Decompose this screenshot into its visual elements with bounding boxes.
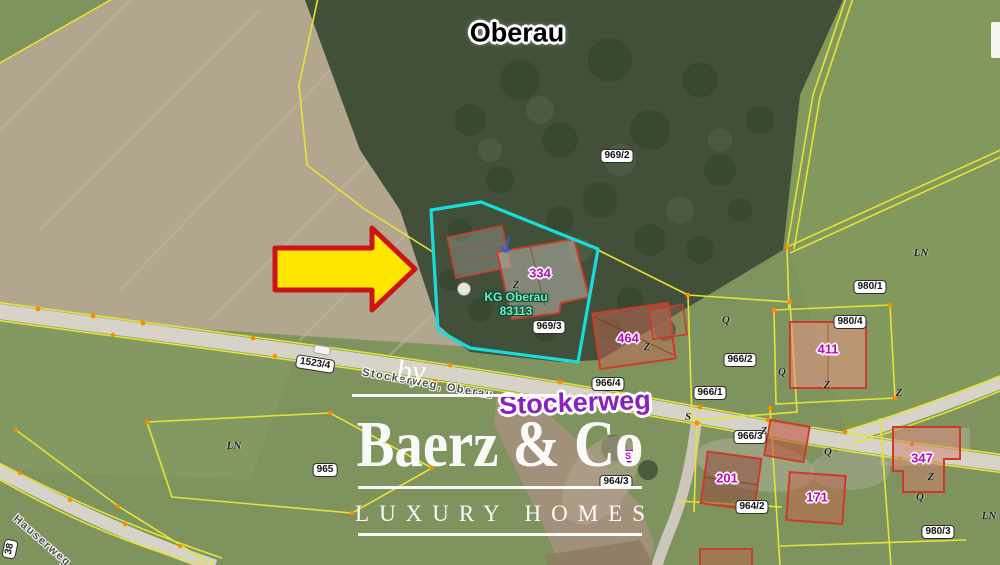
q-symbol: Q — [778, 366, 786, 378]
cadastre-label: KG Oberau 83113 — [484, 290, 547, 318]
z-symbol: Z — [761, 425, 768, 437]
land-use-symbol: LN — [982, 510, 997, 522]
building-number: 464 — [617, 331, 639, 346]
s-symbol: S — [685, 411, 691, 423]
building-footprint-south — [700, 549, 752, 565]
z-symbol: Z — [928, 471, 935, 483]
land-use-symbol: LN — [914, 247, 929, 259]
building-number: 334 — [529, 266, 551, 281]
dome-structure — [458, 283, 471, 296]
road-hauserweg — [0, 469, 215, 565]
building-number: 171 — [806, 490, 828, 505]
building-number: 201 — [716, 471, 738, 486]
building-number: 347 — [911, 451, 933, 466]
parcel-label: 966/2 — [723, 353, 756, 367]
cadastre-community: KG Oberau — [484, 290, 547, 304]
parcel-label: 964/3 — [599, 475, 632, 489]
z-symbol: Z — [896, 387, 903, 399]
building-number: 411 — [818, 342, 839, 357]
land-use-symbol: LN — [227, 440, 242, 452]
place-label: Oberau — [470, 18, 565, 49]
z-symbol: Z — [824, 379, 831, 391]
parcel-label: 964/2 — [735, 500, 768, 514]
clipped-label — [991, 22, 1000, 58]
q-symbol: Q — [722, 314, 730, 326]
q-symbol: Q — [916, 491, 924, 503]
building-footprint-roadside — [764, 420, 810, 462]
parcel-label: 980/1 — [853, 280, 886, 294]
map-canvas — [0, 0, 1000, 565]
road-branch — [657, 424, 696, 565]
parcel-label: 965 — [313, 463, 338, 477]
z-symbol: Z — [644, 341, 651, 353]
parcel-label: 969/3 — [532, 320, 565, 334]
q-symbol: Q — [824, 446, 832, 458]
parcel-label: 980/3 — [921, 525, 954, 539]
street-label-stockerweg: Stockerweg — [499, 385, 652, 421]
parcel-label: 966/1 — [693, 386, 726, 400]
z-symbol: Z — [513, 279, 520, 291]
cadastre-code: 83113 — [484, 304, 547, 318]
parcel-label: 980/4 — [833, 315, 866, 329]
s-symbol-boxed: S — [622, 450, 634, 462]
parcel-label: 969/2 — [600, 149, 633, 163]
aerial-map: Oberau 969/2 969/3 980/1 980/4 966/2 966… — [0, 0, 1000, 565]
